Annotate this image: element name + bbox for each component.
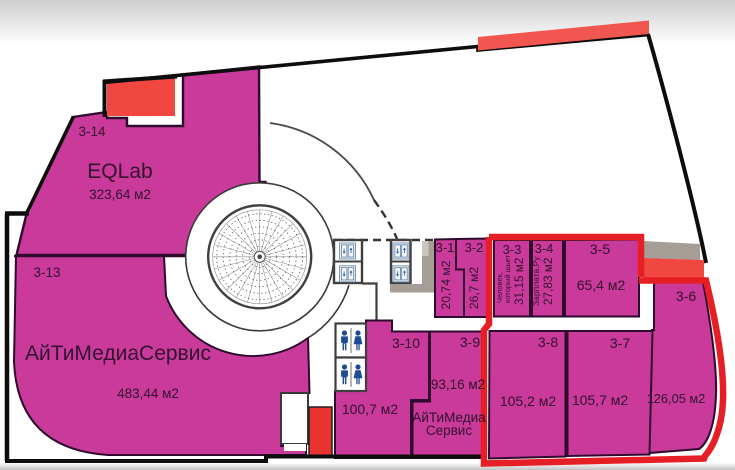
svg-text:АйТиМедиаСервис: АйТиМедиаСервис [25, 342, 211, 365]
svg-text:105,2 м2: 105,2 м2 [500, 393, 557, 409]
svg-text:20,74 м2: 20,74 м2 [439, 260, 453, 309]
svg-text:483,44 м2: 483,44 м2 [117, 386, 179, 401]
svg-text:3-1: 3-1 [436, 240, 455, 255]
svg-text:3-13: 3-13 [33, 265, 60, 280]
svg-text:3-4: 3-4 [535, 241, 554, 256]
svg-text:3-7: 3-7 [610, 335, 630, 351]
svg-text:65,4 м2: 65,4 м2 [577, 277, 626, 293]
svg-text:EQLab: EQLab [87, 160, 152, 183]
svg-text:105,7 м2: 105,7 м2 [572, 392, 629, 408]
svg-text:3-14: 3-14 [78, 124, 106, 139]
svg-text:3-10: 3-10 [392, 335, 420, 351]
svg-text:3-2: 3-2 [465, 240, 484, 255]
svg-text:323,64 м2: 323,64 м2 [89, 187, 151, 202]
svg-text:27,83 м2: 27,83 м2 [541, 258, 555, 305]
svg-text:3-9: 3-9 [460, 334, 480, 350]
svg-text:3-3: 3-3 [503, 242, 522, 257]
svg-text:Сервис: Сервис [426, 423, 472, 438]
svg-text:126,05 м2: 126,05 м2 [647, 391, 706, 406]
svg-text:Зарплата.Ру: Зарплата.Ру [531, 256, 541, 306]
svg-text:26,7 м2: 26,7 м2 [467, 267, 481, 309]
svg-text:который шьет: который шьет [503, 254, 512, 303]
svg-text:93,16 м2: 93,16 м2 [431, 377, 485, 392]
svg-text:3-8: 3-8 [538, 334, 558, 350]
svg-text:100,7 м2: 100,7 м2 [342, 401, 399, 417]
svg-text:31,15 м2: 31,15 м2 [512, 258, 526, 305]
svg-text:3-5: 3-5 [590, 241, 610, 257]
svg-text:3-6: 3-6 [676, 288, 696, 304]
